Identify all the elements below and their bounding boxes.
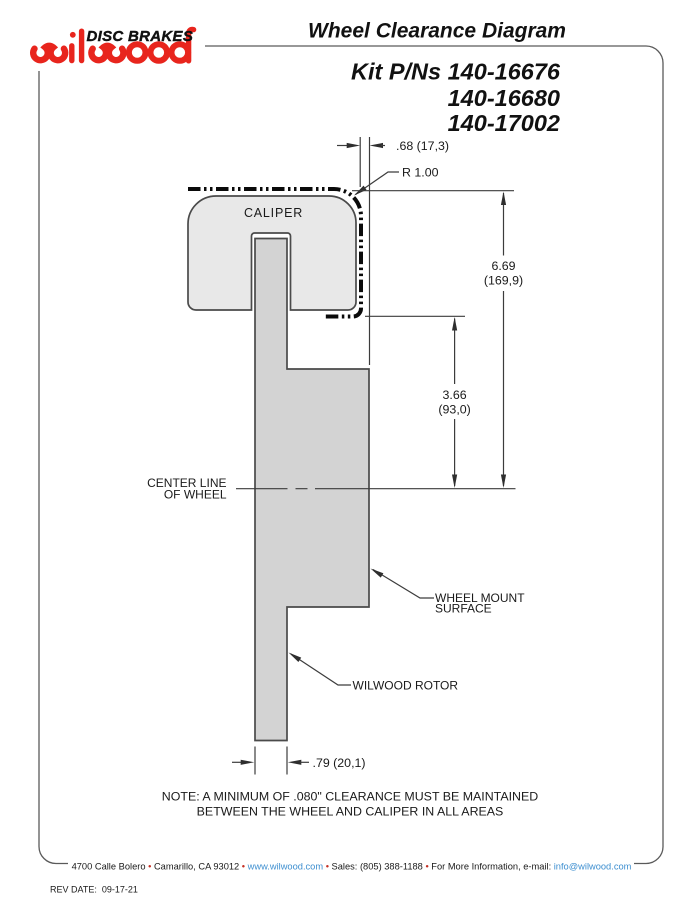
svg-text:CALIPER: CALIPER xyxy=(244,206,303,220)
svg-text:(169,9): (169,9) xyxy=(484,274,523,288)
svg-text:NOTE: A MINIMUM OF .080" CLEAR: NOTE: A MINIMUM OF .080" CLEARANCE MUST … xyxy=(162,790,538,804)
svg-text:Kit P/Ns 140-16676: Kit P/Ns 140-16676 xyxy=(351,59,561,85)
svg-text:.68 (17,3): .68 (17,3) xyxy=(396,139,449,153)
svg-text:WILWOOD ROTOR: WILWOOD ROTOR xyxy=(353,679,459,693)
svg-text:3.66: 3.66 xyxy=(443,388,467,402)
svg-text:REV DATE: 09-17-21: REV DATE: 09-17-21 xyxy=(50,885,138,895)
svg-text:6.69: 6.69 xyxy=(491,259,515,273)
svg-text:BETWEEN THE WHEEL AND CALIPER: BETWEEN THE WHEEL AND CALIPER IN ALL ARE… xyxy=(197,805,504,819)
svg-text:(93,0): (93,0) xyxy=(438,403,470,417)
svg-text:140-17002: 140-17002 xyxy=(448,110,560,136)
svg-text:140-16680: 140-16680 xyxy=(448,85,560,111)
svg-text:DISC BRAKES: DISC BRAKES xyxy=(87,28,194,45)
svg-text:R 1.00: R 1.00 xyxy=(402,166,439,180)
svg-text:SURFACE: SURFACE xyxy=(435,602,492,616)
svg-text:.79 (20,1): .79 (20,1) xyxy=(313,756,366,770)
svg-text:Wheel Clearance Diagram: Wheel Clearance Diagram xyxy=(308,20,566,43)
svg-text:4700 Calle Bolero • Camarillo,: 4700 Calle Bolero • Camarillo, CA 93012 … xyxy=(72,862,632,872)
svg-text:OF WHEEL: OF WHEEL xyxy=(164,488,227,502)
